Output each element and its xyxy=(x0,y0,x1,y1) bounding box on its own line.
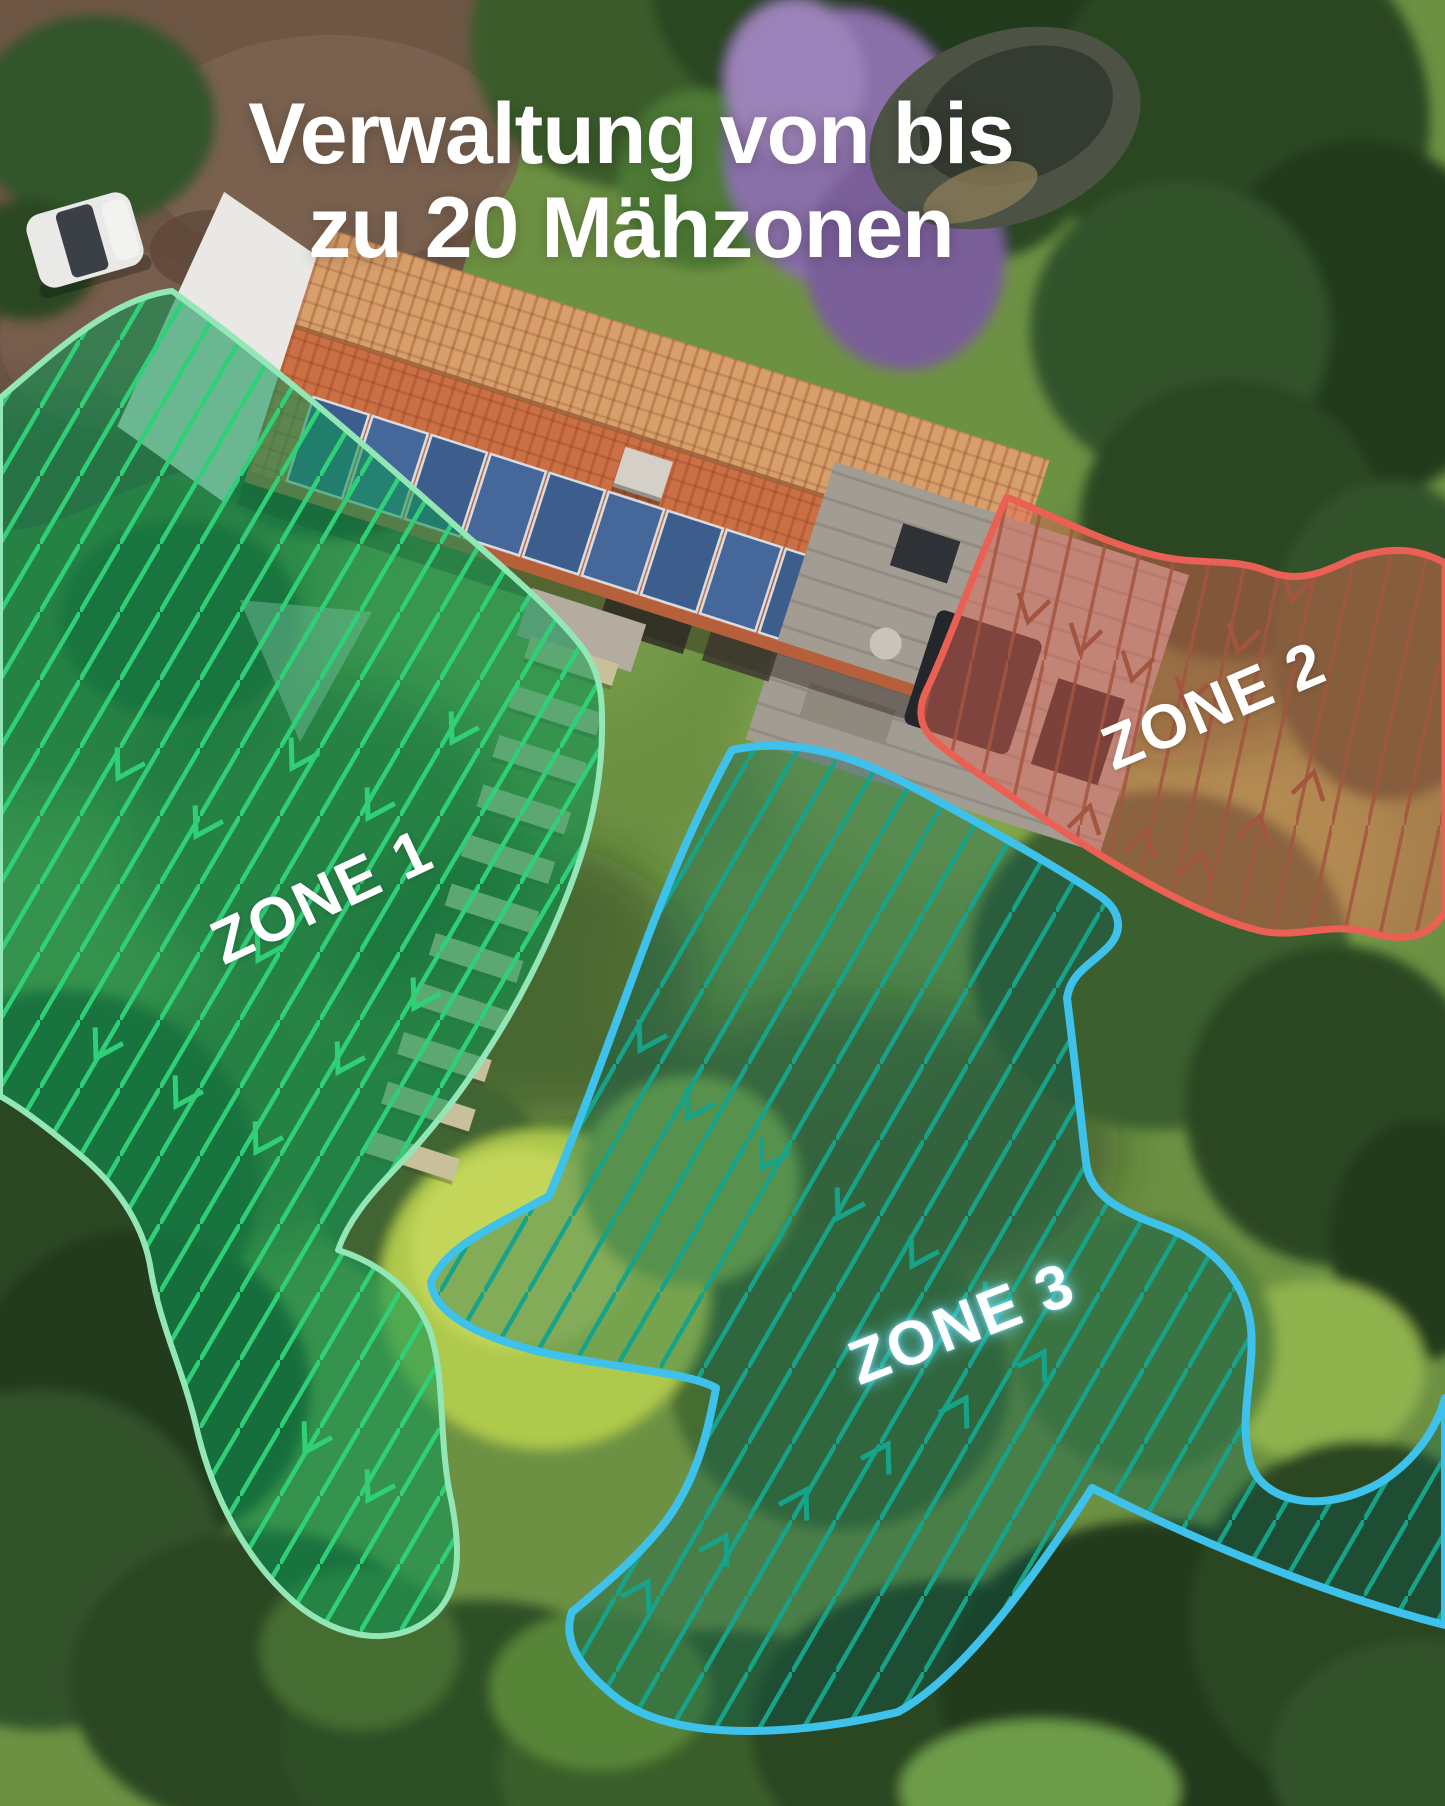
aerial-garden-scene: Verwaltung von bis zu 20 Mähzonen ZONE 1… xyxy=(0,0,1445,1806)
headline-line-2: zu 20 Mähzonen xyxy=(0,182,1262,276)
headline: Verwaltung von bis zu 20 Mähzonen xyxy=(0,88,1262,275)
headline-line-1: Verwaltung von bis xyxy=(0,88,1262,182)
